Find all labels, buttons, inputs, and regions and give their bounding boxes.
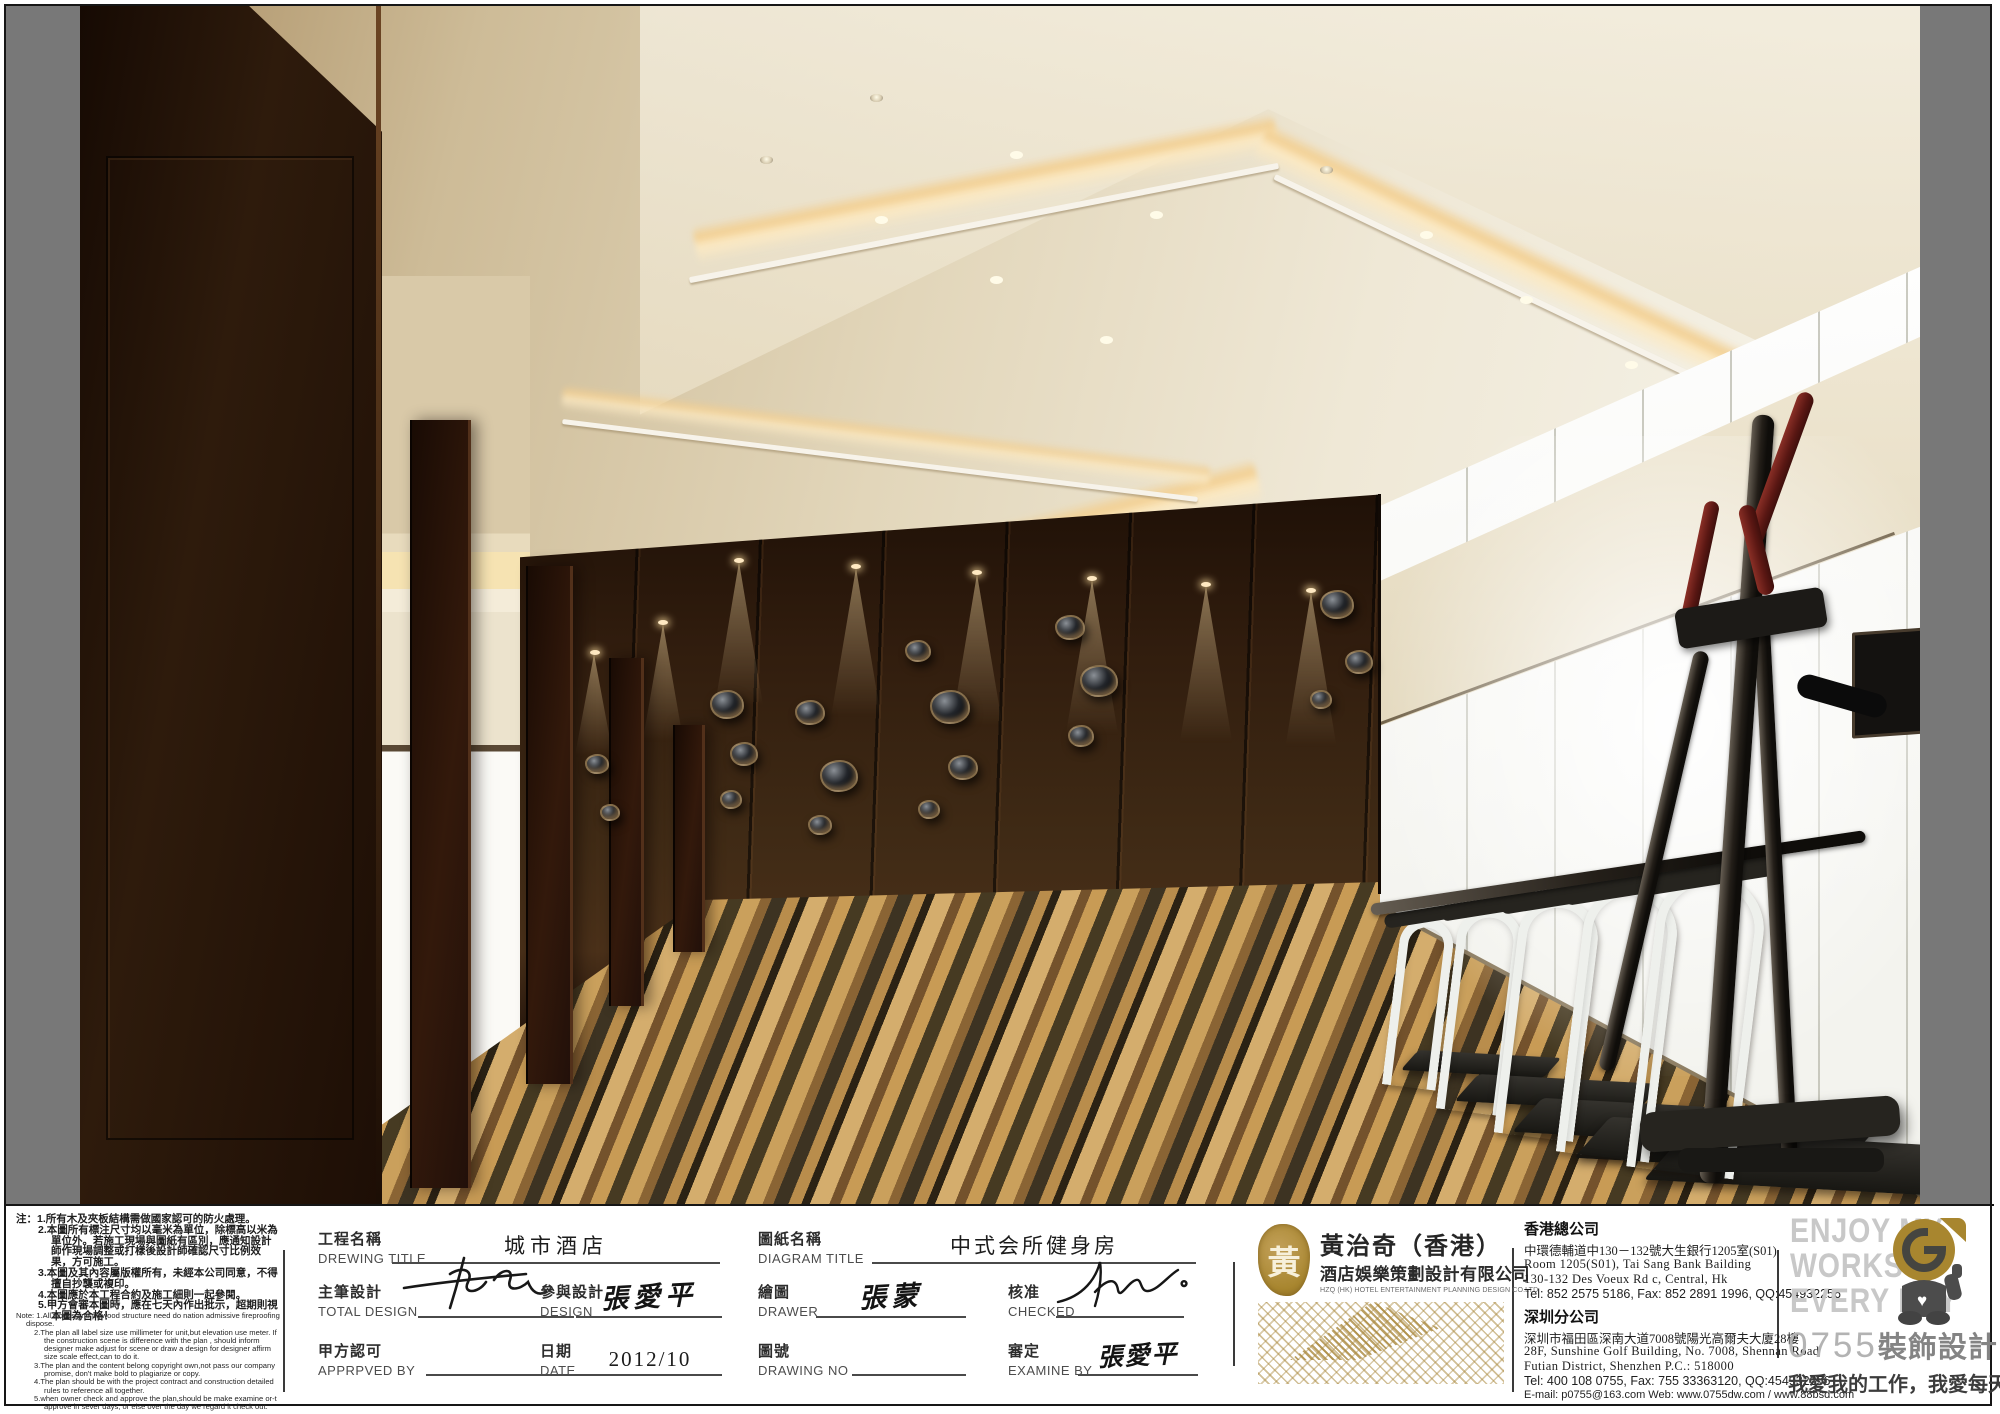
date-label: 日期 DATE <box>540 1340 576 1378</box>
studio-tagline: 我愛我的工作，我愛每天創作 <box>1788 1368 2000 1397</box>
company-name-sub: 酒店娛樂策劃設計有限公司 <box>1320 1260 1506 1285</box>
drawer-label: 繪圖 DRAWER <box>758 1281 818 1319</box>
signature-examine: 張愛平 <box>1077 1333 1199 1375</box>
title-block-top-border <box>6 1204 1994 1206</box>
note-line: 2.本圖所有標注尺寸均以毫米為單位，除標高以米為單位外。若施工現場與圖紙有區別，… <box>38 1225 278 1268</box>
sz-office-title: 深圳分公司 <box>1524 1306 1599 1327</box>
drawer-field: 張蒙 <box>816 1268 966 1318</box>
note-line: Note: 1.All woods and plywood structure … <box>16 1312 280 1329</box>
notes-chinese: 注：1.所有木及夾板結構需做國家認可的防火處理。 2.本圖所有標注尺寸均以毫米為… <box>16 1214 278 1322</box>
studio-brand: 0755裝飾設計 <box>1788 1324 1998 1366</box>
note-line: 3.本圖及其內容屬版權所有，未經本公司同意，不得擅自抄襲或複印。 <box>38 1268 278 1290</box>
hk-office-line: 130-132 Des Voeux Rd c, Central, Hk <box>1524 1272 1728 1287</box>
note-line: 4.The plan should be with the project co… <box>34 1378 280 1395</box>
sz-office-line: Tel: 400 108 0755, Fax: 755 33363120, QQ… <box>1524 1374 1831 1388</box>
sz-office-line: 28F, Sunshine Golf Building, No. 7008, S… <box>1524 1344 1819 1359</box>
note-line: 2.The plan all label size use millimeter… <box>34 1329 280 1362</box>
hk-office-title: 香港總公司 <box>1524 1218 1599 1239</box>
design-sheet: 注：1.所有木及夾板結構需做國家認可的防火處理。 2.本圖所有標注尺寸均以毫米為… <box>0 0 2000 1414</box>
title-block-divider <box>1233 1262 1235 1366</box>
date-value: 2012/10 <box>578 1347 722 1372</box>
title-block-divider <box>283 1250 285 1392</box>
design-field: 張愛平 <box>576 1268 722 1318</box>
sheet-frame <box>4 4 1992 1406</box>
sz-office-line: Futian District, Shenzhen P.C.: 518000 <box>1524 1359 1734 1374</box>
notes-english: Note: 1.All woods and plywood structure … <box>16 1312 280 1412</box>
company-seal-logo: 黃 <box>1258 1224 1310 1296</box>
company-name-en: HZQ (HK) HOTEL ENTERTAINMENT PLANNING DE… <box>1320 1286 1506 1294</box>
heart-icon: ♥ <box>1917 1291 1927 1310</box>
signature-design: 張愛平 <box>575 1271 723 1318</box>
date-field: 2012/10 <box>578 1348 722 1376</box>
note-line: 3.The plan and the content belong copyri… <box>34 1362 280 1379</box>
hk-office-line: Room 1205(S01), Tai Sang Bank Bailding <box>1524 1257 1751 1272</box>
drawing-no-label: 圖號 DRAWING NO <box>758 1340 848 1378</box>
signature-checked <box>1052 1256 1202 1314</box>
diagram-title-label: 圖紙名稱 DIAGRAM TITLE <box>758 1228 864 1266</box>
studio-mascot-logo: ♥ <box>1888 1216 1968 1328</box>
examine-field: 張愛平 <box>1078 1330 1198 1376</box>
signature-drawer: 張蒙 <box>815 1271 967 1318</box>
company-name-cn: 黃治奇（香港） <box>1320 1226 1506 1261</box>
drawing-no-field <box>852 1348 966 1376</box>
note-line: 5.when owner check and approve the plan,… <box>34 1395 280 1412</box>
approved-label: 甲方認可 APPRPVED BY <box>318 1340 415 1378</box>
